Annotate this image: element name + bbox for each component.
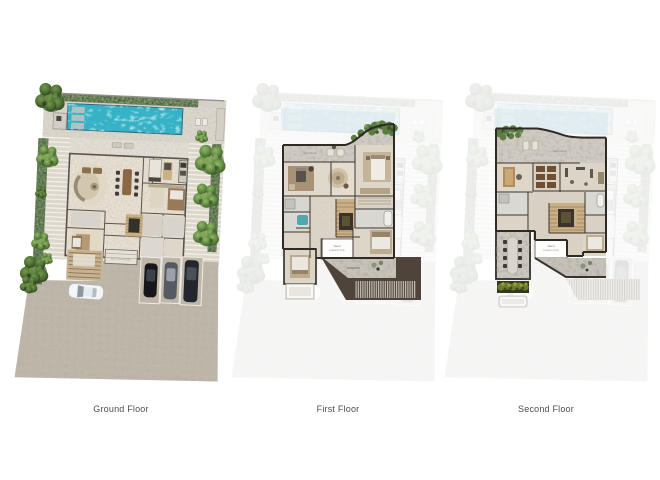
svg-text:Stand: Stand [548, 244, 555, 248]
svg-text:Roof Deck: Roof Deck [303, 151, 317, 155]
svg-text:Stand: Stand [334, 244, 341, 248]
svg-text:Second Floor: Second Floor [518, 404, 574, 414]
svg-text:(vacant) Only: (vacant) Only [543, 248, 559, 252]
svg-text:Ground Floor: Ground Floor [93, 404, 148, 414]
svg-text:Roof Deck: Roof Deck [553, 149, 567, 153]
svg-text:(vacant) Only: (vacant) Only [329, 248, 345, 252]
svg-text:First Floor: First Floor [317, 404, 360, 414]
